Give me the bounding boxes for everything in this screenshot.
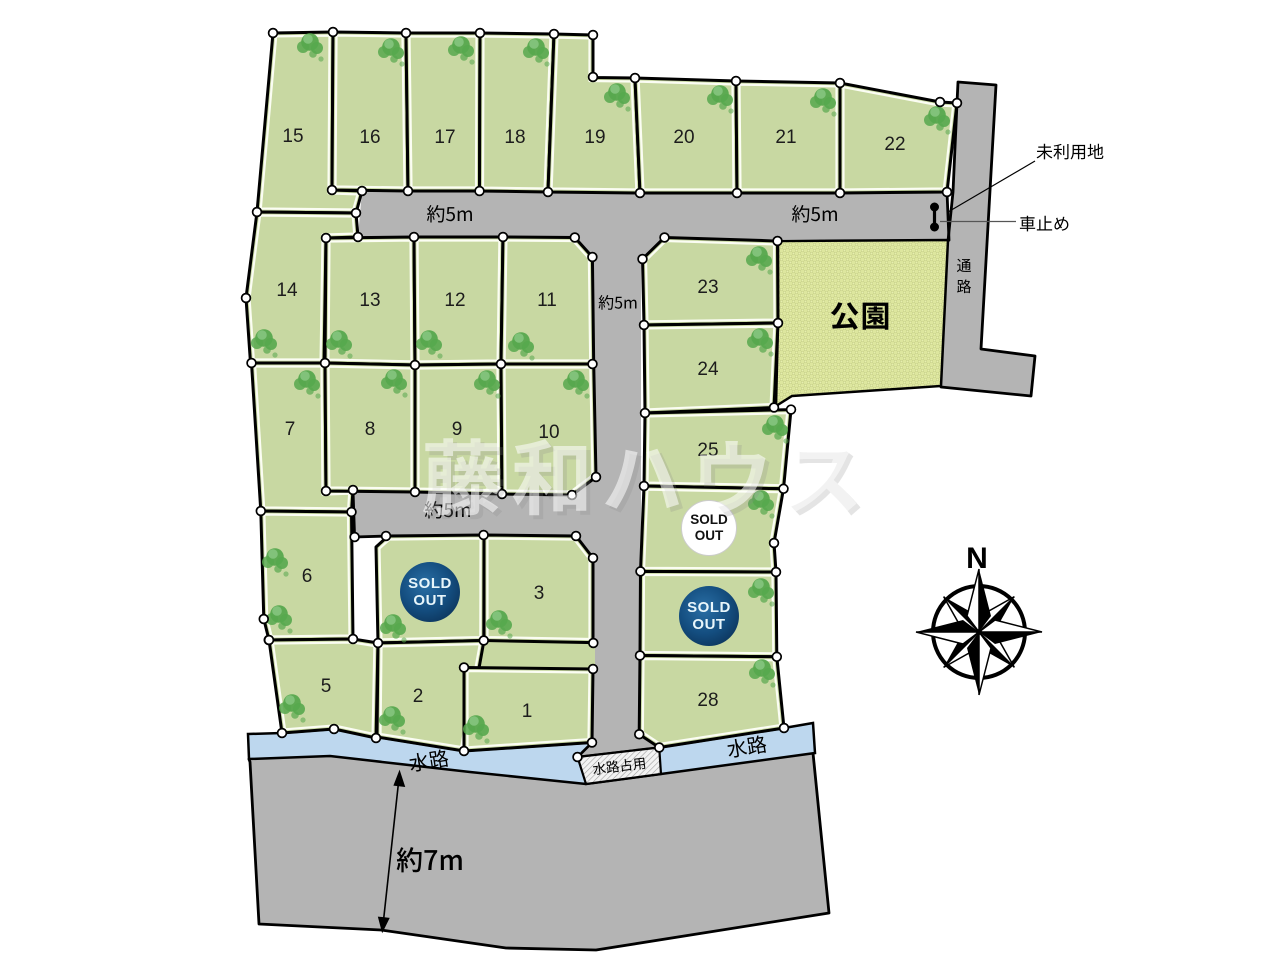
svg-text:OUT: OUT [695,528,724,543]
svg-text:9: 9 [452,419,463,440]
svg-text:16: 16 [359,127,380,148]
svg-text:1: 1 [522,701,533,722]
svg-text:18: 18 [504,127,525,148]
svg-text:OUT: OUT [692,616,725,633]
svg-text:19: 19 [584,127,605,148]
svg-text:SOLD: SOLD [687,599,731,616]
svg-text:15: 15 [282,126,303,147]
svg-text:6: 6 [302,566,313,587]
svg-text:11: 11 [537,290,557,311]
svg-text:22: 22 [884,134,905,155]
svg-text:SOLD: SOLD [408,575,452,592]
svg-text:12: 12 [444,290,465,311]
svg-text:2: 2 [413,686,424,707]
svg-text:14: 14 [276,280,298,301]
svg-text:5: 5 [321,676,332,697]
svg-text:8: 8 [365,419,376,440]
svg-text:3: 3 [534,583,545,604]
svg-text:28: 28 [697,690,718,711]
svg-text:10: 10 [538,422,559,443]
svg-text:OUT: OUT [413,592,446,609]
svg-text:N: N [966,542,988,575]
svg-text:21: 21 [775,127,796,148]
svg-text:13: 13 [359,290,380,311]
svg-text:7: 7 [285,419,296,440]
svg-text:17: 17 [434,127,455,148]
svg-text:20: 20 [673,127,694,148]
svg-text:23: 23 [697,277,718,298]
svg-text:SOLD: SOLD [690,512,728,527]
svg-text:24: 24 [697,359,719,380]
